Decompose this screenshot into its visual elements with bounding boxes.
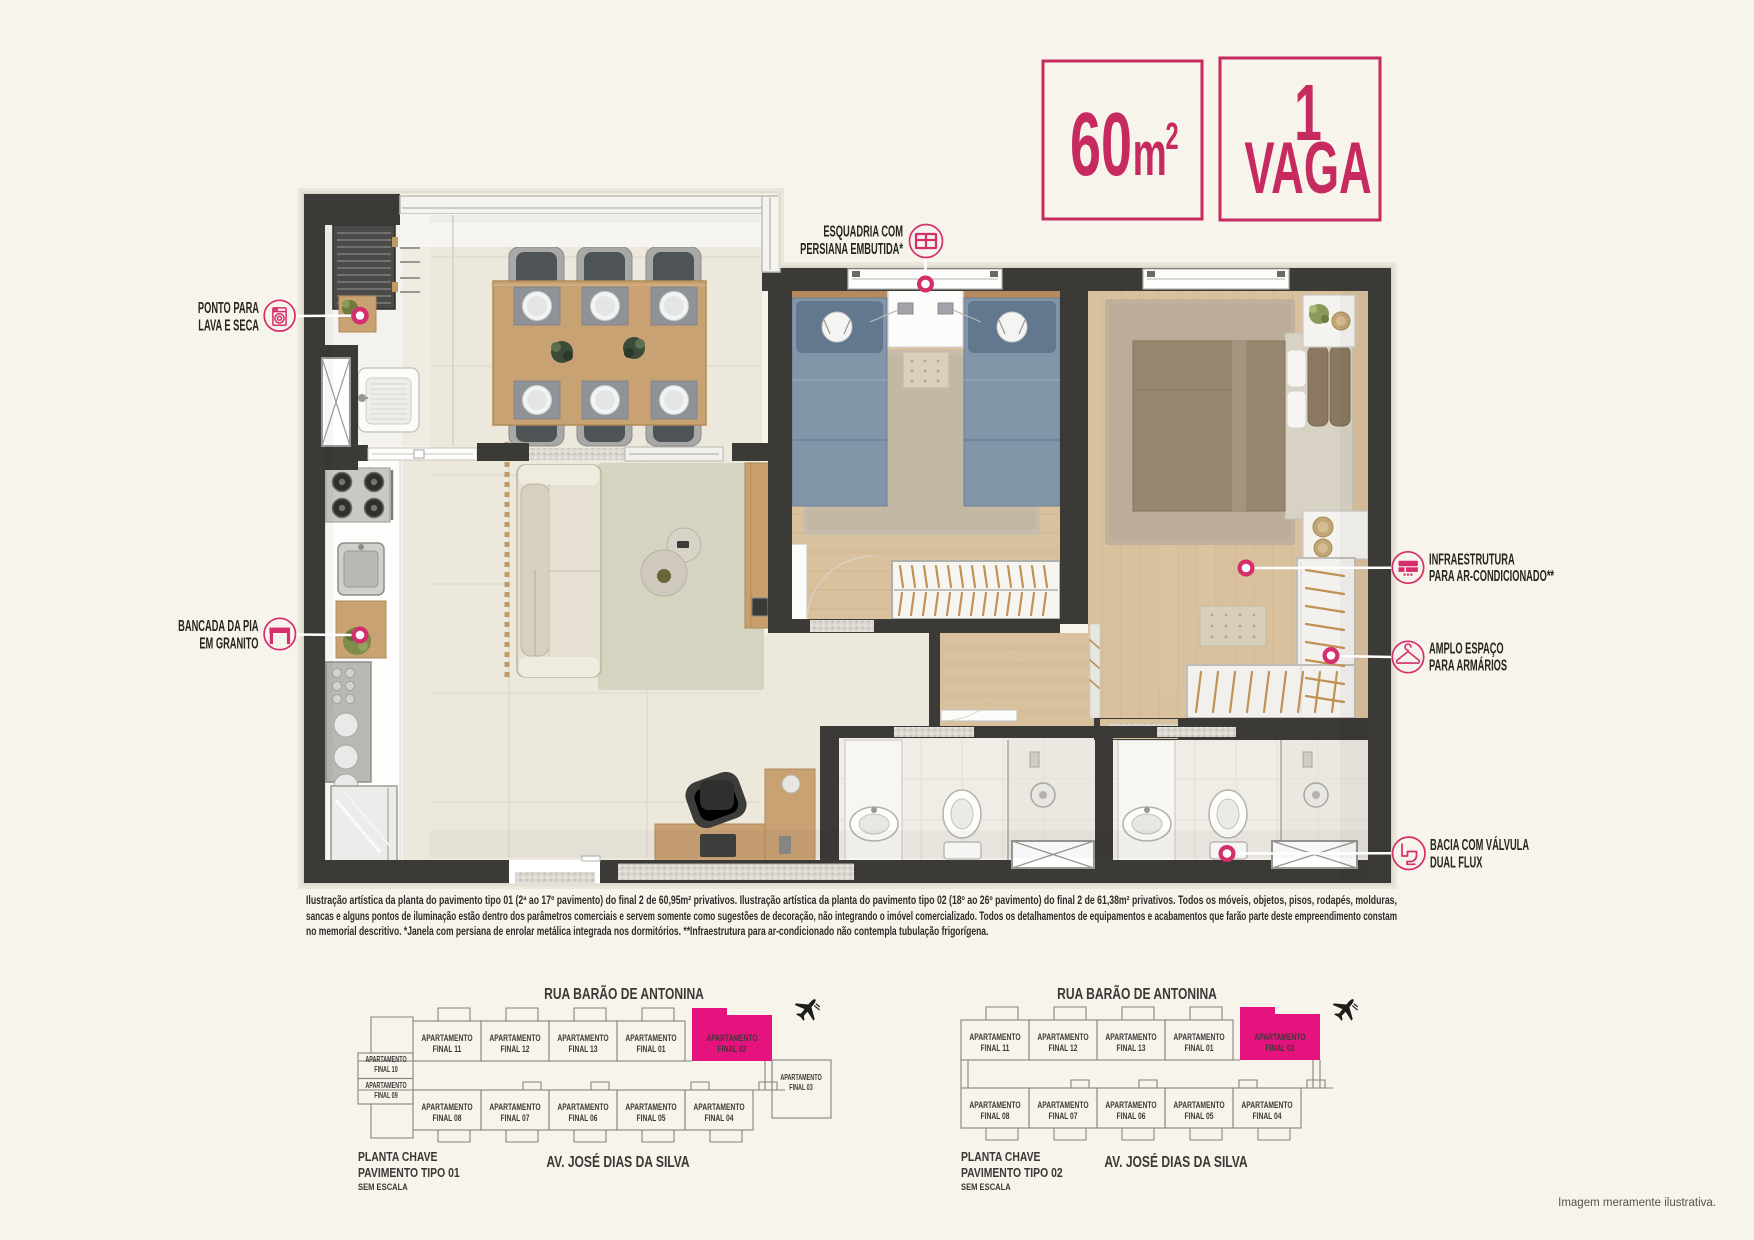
svg-text:LAVA E SECA: LAVA E SECA bbox=[198, 316, 259, 334]
svg-text:APARTAMENTO: APARTAMENTO bbox=[365, 1082, 407, 1090]
svg-text:APARTAMENTO: APARTAMENTO bbox=[1105, 1032, 1156, 1042]
svg-text:APARTAMENTO: APARTAMENTO bbox=[1037, 1100, 1088, 1110]
svg-text:RUA BARÃO DE ANTONINA: RUA BARÃO DE ANTONINA bbox=[544, 983, 704, 1002]
svg-text:APARTAMENTO: APARTAMENTO bbox=[1037, 1032, 1088, 1042]
svg-text:PARA ARMÁRIOS: PARA ARMÁRIOS bbox=[1429, 656, 1507, 674]
svg-text:AV. JOSÉ DIAS DA SILVA: AV. JOSÉ DIAS DA SILVA bbox=[546, 1153, 689, 1171]
svg-text:FINAL 09: FINAL 09 bbox=[374, 1092, 398, 1100]
svg-text:APARTAMENTO: APARTAMENTO bbox=[780, 1074, 822, 1082]
svg-text:FINAL 12: FINAL 12 bbox=[500, 1044, 530, 1054]
svg-text:APARTAMENTO: APARTAMENTO bbox=[1105, 1100, 1156, 1110]
svg-text:FINAL 10: FINAL 10 bbox=[374, 1066, 398, 1074]
svg-text:FINAL 02: FINAL 02 bbox=[1265, 1043, 1295, 1053]
svg-text:APARTAMENTO: APARTAMENTO bbox=[625, 1102, 676, 1112]
svg-text:RUA BARÃO DE ANTONINA: RUA BARÃO DE ANTONINA bbox=[1057, 983, 1217, 1002]
svg-text:PLANTA CHAVE: PLANTA CHAVE bbox=[961, 1150, 1041, 1164]
svg-text:APARTAMENTO: APARTAMENTO bbox=[969, 1032, 1020, 1042]
svg-text:VAGA: VAGA bbox=[1244, 127, 1371, 209]
svg-text:FINAL 11: FINAL 11 bbox=[981, 1043, 1010, 1053]
svg-text:SEM ESCALA: SEM ESCALA bbox=[961, 1181, 1011, 1192]
svg-text:2: 2 bbox=[1165, 114, 1178, 157]
svg-text:PLANTA CHAVE: PLANTA CHAVE bbox=[358, 1150, 438, 1164]
svg-text:FINAL 03: FINAL 03 bbox=[789, 1084, 813, 1092]
svg-text:APARTAMENTO: APARTAMENTO bbox=[421, 1102, 472, 1112]
svg-text:FINAL 07: FINAL 07 bbox=[500, 1113, 530, 1123]
svg-text:APARTAMENTO: APARTAMENTO bbox=[706, 1033, 757, 1043]
svg-text:FINAL 08: FINAL 08 bbox=[980, 1111, 1010, 1121]
svg-text:EM GRANITO: EM GRANITO bbox=[199, 634, 258, 652]
svg-text:APARTAMENTO: APARTAMENTO bbox=[969, 1100, 1020, 1110]
svg-text:APARTAMENTO: APARTAMENTO bbox=[365, 1056, 407, 1064]
svg-text:60: 60 bbox=[1070, 93, 1132, 194]
svg-text:FINAL 01: FINAL 01 bbox=[1184, 1043, 1214, 1053]
svg-text:APARTAMENTO: APARTAMENTO bbox=[1254, 1032, 1305, 1042]
svg-text:FINAL 06: FINAL 06 bbox=[1116, 1111, 1146, 1121]
svg-text:FINAL 07: FINAL 07 bbox=[1048, 1111, 1078, 1121]
svg-text:FINAL 13: FINAL 13 bbox=[1116, 1043, 1146, 1053]
svg-text:APARTAMENTO: APARTAMENTO bbox=[693, 1102, 744, 1112]
svg-text:Imagem meramente ilustrativa.: Imagem meramente ilustrativa. bbox=[1558, 1197, 1716, 1209]
svg-text:APARTAMENTO: APARTAMENTO bbox=[1173, 1032, 1224, 1042]
svg-text:AMPLO ESPAÇO: AMPLO ESPAÇO bbox=[1429, 639, 1504, 657]
svg-text:PERSIANA EMBUTIDA*: PERSIANA EMBUTIDA* bbox=[800, 239, 903, 257]
svg-text:FINAL 11: FINAL 11 bbox=[433, 1044, 462, 1054]
svg-text:APARTAMENTO: APARTAMENTO bbox=[1241, 1100, 1292, 1110]
svg-text:AV. JOSÉ DIAS DA SILVA: AV. JOSÉ DIAS DA SILVA bbox=[1104, 1153, 1247, 1171]
svg-text:FINAL 13: FINAL 13 bbox=[568, 1044, 598, 1054]
svg-text:APARTAMENTO: APARTAMENTO bbox=[1173, 1100, 1224, 1110]
svg-text:FINAL 06: FINAL 06 bbox=[568, 1113, 598, 1123]
svg-text:FINAL 12: FINAL 12 bbox=[1048, 1043, 1078, 1053]
svg-text:PAVIMENTO TIPO 02: PAVIMENTO TIPO 02 bbox=[961, 1166, 1063, 1180]
svg-text:PARA AR-CONDICIONADO**: PARA AR-CONDICIONADO** bbox=[1429, 566, 1554, 584]
svg-text:APARTAMENTO: APARTAMENTO bbox=[557, 1102, 608, 1112]
svg-text:APARTAMENTO: APARTAMENTO bbox=[489, 1033, 540, 1043]
svg-text:FINAL 04: FINAL 04 bbox=[704, 1113, 734, 1123]
svg-text:FINAL 05: FINAL 05 bbox=[1184, 1111, 1214, 1121]
svg-text:DUAL FLUX: DUAL FLUX bbox=[1430, 853, 1483, 871]
svg-text:FINAL 01: FINAL 01 bbox=[636, 1044, 666, 1054]
svg-text:APARTAMENTO: APARTAMENTO bbox=[557, 1033, 608, 1043]
svg-text:APARTAMENTO: APARTAMENTO bbox=[421, 1033, 472, 1043]
svg-text:ESQUADRIA COM: ESQUADRIA COM bbox=[823, 222, 903, 240]
svg-text:APARTAMENTO: APARTAMENTO bbox=[625, 1033, 676, 1043]
svg-text:m: m bbox=[1133, 119, 1167, 189]
svg-text:PONTO PARA: PONTO PARA bbox=[198, 298, 259, 316]
svg-text:BANCADA DA PIA: BANCADA DA PIA bbox=[178, 616, 258, 634]
svg-text:FINAL 05: FINAL 05 bbox=[636, 1113, 666, 1123]
svg-text:APARTAMENTO: APARTAMENTO bbox=[489, 1102, 540, 1112]
svg-text:INFRAESTRUTURA: INFRAESTRUTURA bbox=[1429, 550, 1515, 568]
svg-text:FINAL 04: FINAL 04 bbox=[1252, 1111, 1282, 1121]
svg-text:PAVIMENTO TIPO 01: PAVIMENTO TIPO 01 bbox=[358, 1166, 460, 1180]
svg-text:FINAL 02: FINAL 02 bbox=[717, 1044, 747, 1054]
svg-text:BACIA COM VÁLVULA: BACIA COM VÁLVULA bbox=[1430, 835, 1529, 853]
svg-text:FINAL 08: FINAL 08 bbox=[432, 1113, 462, 1123]
svg-text:SEM ESCALA: SEM ESCALA bbox=[358, 1181, 408, 1192]
